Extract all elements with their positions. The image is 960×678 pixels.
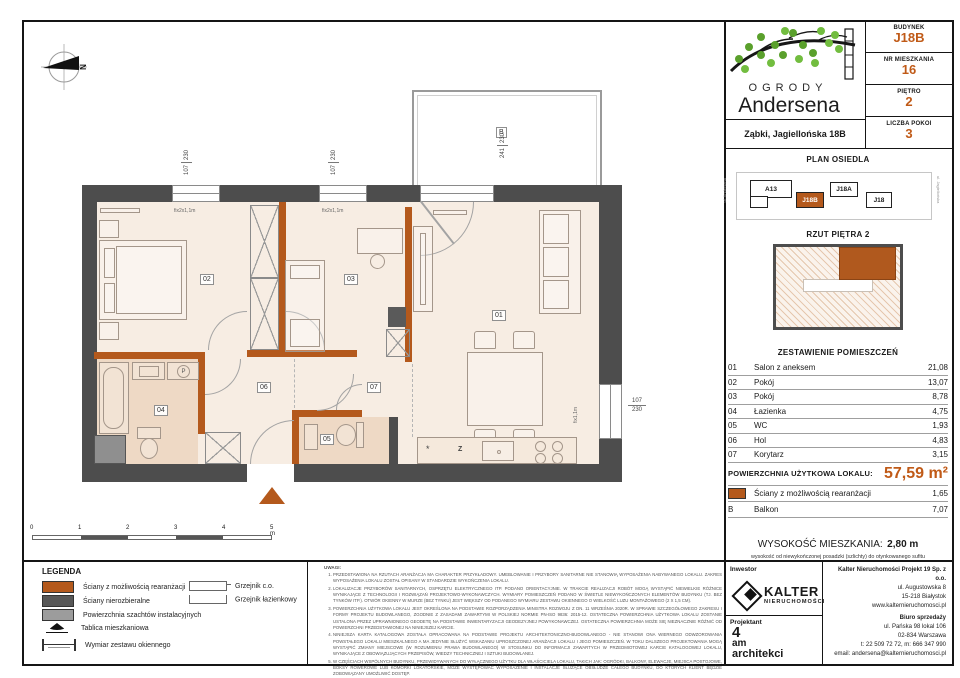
- floor-plan: N B: [24, 22, 724, 560]
- legend-swatch-orange: [42, 581, 74, 593]
- height-label: WYSOKOŚĆ MIESZKANIA:: [758, 539, 883, 550]
- double-bed: [99, 240, 187, 320]
- field-nr-mieszkania: NR MIESZKANIA 16: [866, 54, 952, 85]
- single-bed-blanket: [290, 319, 320, 347]
- dim-w1-width: 107: [184, 165, 190, 175]
- legend-label: Grzejnik łazienkowy: [235, 596, 297, 603]
- field-budynek: BUDYNEK J18B: [866, 22, 952, 53]
- row-area: 1,93: [932, 421, 948, 430]
- wall-bottom: [82, 464, 622, 482]
- pillow-1: [104, 248, 115, 278]
- kitchen-sink-tap: [497, 450, 501, 454]
- cabinet-divider: [420, 233, 426, 305]
- company-addr1: ul. Augustowska 8: [826, 584, 946, 593]
- legend-label: Grzejnik c.o.: [235, 583, 274, 590]
- room-label-04: 04: [154, 405, 168, 416]
- dim-window-right: 107 230: [626, 398, 648, 413]
- dim-sep: [497, 145, 508, 146]
- table-balcony-row: B Balkon 7,07: [728, 502, 948, 518]
- floor-thumb: [773, 244, 903, 330]
- scale-tick-0: 0: [30, 525, 33, 531]
- row-name: Łazienka: [754, 407, 932, 416]
- legend-item-dark: Ściany nierozbieralne: [42, 595, 150, 607]
- scale-tick-4: 4: [222, 525, 225, 531]
- bath-sink: [132, 362, 165, 380]
- dashed-hol-korytarz: [294, 359, 295, 408]
- dashed-salon-kitchen: [412, 364, 413, 437]
- tablica-icon: [42, 623, 72, 633]
- row-name: Korytarz: [754, 450, 932, 459]
- investor-label: Inwestor: [730, 566, 757, 573]
- table-row: 07Korytarz3,15: [728, 448, 948, 463]
- row-name: Salon z aneksem: [754, 363, 928, 372]
- dim-w4-line: [628, 405, 646, 406]
- brand-address: Ząbki, Jagiellońska 18B: [724, 120, 866, 139]
- company-name: Kalter Nieruchomości Projekt 19 Sp. z o.…: [826, 566, 946, 584]
- stove-burner-3: [535, 453, 546, 464]
- tablica-base: [46, 632, 68, 633]
- wc-sink: [304, 424, 318, 450]
- row-name: Pokój: [754, 378, 928, 387]
- orange-wall-bath-right: [198, 359, 205, 434]
- note-item: PRZEDSTAWIONA NA RZUTACH ARANŻACJA MA CH…: [333, 572, 722, 584]
- north-compass-icon: N: [37, 40, 91, 94]
- divider-investor-designer: [724, 615, 822, 616]
- balcony-row-no: B: [728, 505, 754, 514]
- table-walls-row: Ściany z możliwością rearanżacji 1,65: [728, 486, 948, 502]
- height-value: 2,80 m: [887, 539, 918, 550]
- table-row: 01Salon z aneksem21,08: [728, 361, 948, 376]
- fix-label-room02: fix2x1,1m: [174, 208, 195, 214]
- mattress: [116, 246, 182, 314]
- bathtub: [99, 362, 129, 434]
- sales-office-block: Biuro sprzedaży ul. Pańska 98 lokal 106 …: [826, 614, 946, 659]
- legend-item-tablica: Tablica mieszkaniowa: [42, 623, 149, 633]
- kalter-wordmark: KALTER: [764, 584, 819, 599]
- total-label: POWIERZCHNIA UŻYTKOWA LOKALU:: [728, 469, 884, 478]
- row-area: 3,15: [932, 450, 948, 459]
- bath-sink-basin: [139, 366, 159, 377]
- radiator-co-icon: [189, 581, 227, 591]
- stove-burner-4: [552, 453, 563, 464]
- kitchen-sink: [482, 441, 514, 461]
- row-area: 8,78: [932, 392, 948, 401]
- shaft-gray-bath: [94, 435, 126, 464]
- field-pokoi-value: 3: [866, 127, 952, 141]
- site-building-j18b: J18B: [796, 192, 824, 208]
- window-dim-icon: [42, 639, 76, 651]
- bathtub-inner: [103, 367, 124, 429]
- note-item: LOKALIZACJE PRZYBORÓW SANITARNYCH, OSPRZ…: [333, 586, 722, 605]
- room-label-05: 05: [320, 434, 334, 445]
- row-no: 06: [728, 436, 754, 445]
- orange-wall-bath-top: [94, 352, 205, 359]
- legend-item-wymiar: Wymiar zestawu okiennego: [42, 639, 171, 651]
- sales-addr1: ul. Pańska 98 lokal 106: [826, 623, 946, 632]
- walls-row-area: 1,65: [932, 489, 948, 498]
- nightstand-1: [99, 220, 119, 238]
- stove: [528, 438, 574, 465]
- note-item: W CZĘŚCIACH WSPÓLNYCH BUDYNKU, PRZEWIDYW…: [333, 659, 722, 678]
- field-budynek-value: J18B: [866, 31, 952, 45]
- stove-burner-1: [535, 441, 546, 452]
- sheet-frame: N B: [22, 20, 954, 666]
- dim-w3-width: 241: [500, 148, 506, 158]
- fridge-symbol: *: [426, 444, 430, 454]
- window-room03: [319, 185, 367, 202]
- kalter-tagline: nieruchomości: [764, 599, 825, 605]
- scale-seg-5: [223, 536, 271, 539]
- radiator-co-tick: [227, 584, 231, 585]
- dim-w4-width: 107: [626, 398, 648, 404]
- room-label-02: 02: [200, 274, 214, 285]
- legend-title: LEGENDA: [24, 562, 307, 580]
- dim-w3-height: 230: [500, 133, 506, 143]
- legend-label: Ściany nierozbieralne: [83, 598, 150, 605]
- brand-address-cell: Ząbki, Jagiellońska 18B: [724, 119, 866, 149]
- brand-logo-cell: OGRODY Andersena Ząbki, Jagiellońska 18B: [724, 22, 866, 149]
- company-address-block: Kalter Nieruchomości Projekt 19 Sp. z o.…: [826, 566, 946, 611]
- toilet-bath-bowl: [140, 438, 158, 459]
- notes-block: UWAGI: PRZEDSTAWIONA NA RZUTACH ARANŻACJ…: [322, 562, 722, 662]
- floor-thumb-corridor: [803, 279, 872, 292]
- window-room02: [172, 185, 220, 202]
- sofa-cushion-2: [543, 247, 569, 277]
- shaft-dark-salon: [388, 307, 406, 327]
- company-addr2: 15-218 Białystok: [826, 593, 946, 602]
- desk-chair: [370, 254, 385, 269]
- note-item: NINIEJSZA KARTA KATALOGOWA ZOSTAŁA OPRAC…: [333, 632, 722, 657]
- dim-balcony-door: 241230: [497, 133, 508, 158]
- dim-sep: [181, 162, 192, 163]
- row-area: 21,08: [928, 363, 948, 372]
- stove-burner-2: [552, 441, 563, 452]
- row-area: 13,07: [928, 378, 948, 387]
- dim-sep: [328, 162, 339, 163]
- field-nr-value: 16: [866, 63, 952, 77]
- window-dim-line: [44, 644, 74, 645]
- legend-item-grzejnik-co: Grzejnik c.o.: [189, 581, 274, 591]
- row-no: 02: [728, 378, 754, 387]
- shelf-room02: [100, 208, 140, 213]
- balcony-row-name: Balkon: [754, 505, 932, 514]
- dim-window-room02: 107230: [181, 150, 192, 175]
- dim-w4-height: 230: [626, 407, 648, 413]
- rooms-table: ZESTAWIENIE POMIESZCZEŃ 01Salon z anekse…: [728, 348, 948, 518]
- legend-item-grzejnik-laz: Grzejnik łazienkowy: [189, 595, 297, 604]
- table-row: 02Pokój13,07: [728, 376, 948, 391]
- wc-toilet-bowl: [336, 424, 356, 446]
- scale-bar-track: [32, 535, 272, 540]
- total-value: 57,59 m²: [884, 465, 948, 483]
- dining-chair-1: [474, 331, 496, 349]
- rooms-table-title: ZESTAWIENIE POMIESZCZEŃ: [728, 348, 948, 357]
- sofa-cushion-1: [543, 214, 569, 244]
- radiator-bath-icon: [189, 595, 227, 604]
- table-row: 06Hol4,83: [728, 434, 948, 449]
- entrance-marker-triangle: [259, 487, 285, 504]
- room-label-03: 03: [344, 274, 358, 285]
- balcony-row-area: 7,07: [932, 505, 948, 514]
- single-bed-pillow: [290, 265, 320, 279]
- site-plan-title: PLAN OSIEDLA: [724, 155, 952, 164]
- dim-window-room03: 107230: [328, 150, 339, 175]
- row-no: 04: [728, 407, 754, 416]
- row-no: 05: [728, 421, 754, 430]
- tablica-triangle: [48, 623, 66, 630]
- table-row: 04Łazienka4,75: [728, 405, 948, 420]
- walls-swatch-cell: [728, 488, 754, 499]
- legend-item-orange: Ściany z możliwością rearanżacji: [42, 581, 185, 593]
- street-right-label: ul. Jagiellońska: [936, 176, 941, 203]
- dim-w1-height: 230: [184, 150, 190, 160]
- sofa: [539, 210, 581, 314]
- tree-branch-logo: [727, 25, 863, 81]
- brand-name-andersena: Andersena: [724, 94, 854, 118]
- note-item: POWIERZCHNIA UŻYTKOWA LOKALU JEST OKREŚL…: [333, 606, 722, 631]
- site-building-j18: J18: [866, 192, 892, 208]
- compass-n-label: N: [79, 64, 88, 70]
- row-name: Pokój: [754, 392, 932, 401]
- row-area: 4,83: [932, 436, 948, 445]
- floor-thumb-highlight-unit: [839, 247, 896, 280]
- sales-phone: t: 22 509 72 72, m: 666 347 990: [826, 641, 946, 650]
- pillow-2: [104, 283, 115, 313]
- notes-title: UWAGI:: [322, 562, 722, 572]
- site-building-a13-wing: [750, 196, 768, 208]
- sofa-cushion-3: [543, 280, 569, 309]
- legend-swatch-gray: [42, 609, 74, 621]
- brand-block: OGRODY Andersena Ząbki, Jagiellońska 18B…: [724, 22, 952, 149]
- row-no: 07: [728, 450, 754, 459]
- table-row: 05WC1,93: [728, 419, 948, 434]
- washing-machine: P: [167, 362, 199, 380]
- nightstand-2: [99, 322, 119, 340]
- legend-item-shaft: Powierzchnia szachtów instalacyjnych: [42, 609, 201, 621]
- scale-seg-2: [81, 536, 129, 539]
- kitchen-counter: * Z: [417, 437, 577, 464]
- street-left-label: ul. Andersena: [722, 178, 727, 202]
- wardrobe-lower: [250, 278, 279, 350]
- orange-wall-wc-top: [292, 410, 362, 417]
- unit-fields: BUDYNEK J18B NR MIESZKANIA 16 PIĘTRO 2 L…: [866, 22, 952, 149]
- height-note: WYSOKOŚĆ MIESZKANIA: 2,80 m wysokość od …: [724, 534, 952, 560]
- legend: LEGENDA Ściany z możliwością rearanżacji…: [24, 562, 307, 664]
- legend-swatch-dark: [42, 595, 74, 607]
- dining-table: [467, 352, 543, 426]
- dishwasher-symbol: Z: [458, 446, 462, 453]
- sales-title: Biuro sprzedaży: [826, 614, 946, 623]
- dim-w2-width: 107: [331, 165, 337, 175]
- row-name: Hol: [754, 436, 932, 445]
- room-label-07: 07: [367, 382, 381, 393]
- company-web: www.kalternieruchomosci.pl: [826, 602, 946, 611]
- row-area: 4,75: [932, 407, 948, 416]
- walls-row-name: Ściany z możliwością rearanżacji: [754, 489, 932, 498]
- scale-seg-3: [128, 536, 176, 539]
- table-row: 03Pokój8,78: [728, 390, 948, 405]
- divider-legend-notes: [307, 560, 308, 664]
- scale-seg-1: [33, 536, 81, 539]
- wc-toilet-tank: [356, 422, 364, 448]
- scale-tick-3: 3: [174, 525, 177, 531]
- field-pietro: PIĘTRO 2: [866, 86, 952, 117]
- hol-wardrobe: [205, 432, 241, 464]
- table-total-row: POWIERZCHNIA UŻYTKOWA LOKALU: 57,59 m²: [728, 463, 948, 486]
- wardrobe-upper: [250, 205, 279, 278]
- legend-label: Wymiar zestawu okiennego: [85, 642, 171, 649]
- designer-logo: 4 am architekci: [732, 626, 783, 660]
- room-label-06: 06: [257, 382, 271, 393]
- brand-name-ogrody: OGRODY: [724, 82, 852, 94]
- field-pietro-value: 2: [866, 95, 952, 109]
- tall-cabinet: [413, 226, 433, 312]
- scale-tick-2: 2: [126, 525, 129, 531]
- legend-label: Ściany z możliwością rearanżacji: [83, 584, 185, 591]
- row-no: 01: [728, 363, 754, 372]
- scale-bar: 0 1 2 3 4 5 m: [32, 525, 274, 543]
- designer-architekci: architekci: [732, 649, 783, 660]
- scale-tick-1: 1: [78, 525, 81, 531]
- site-plan-map: ul. Andersena ul. Jagiellońska A13 J18B …: [724, 168, 952, 226]
- window-dim-line2: [48, 647, 70, 648]
- row-no: 03: [728, 392, 754, 401]
- washing-machine-drum: P: [177, 365, 190, 378]
- room-label-01: 01: [492, 310, 506, 321]
- row-name: WC: [754, 421, 932, 430]
- entrance-opening: [247, 464, 294, 482]
- site-building-j18a: J18A: [830, 182, 858, 197]
- scale-seg-4: [176, 536, 224, 539]
- dining-chair-2: [513, 331, 535, 349]
- fix-label-window-right: fix1,1m: [573, 407, 579, 423]
- orange-wall-swatch: [728, 488, 746, 499]
- sales-email: email: andersena@kalternieruchomosci.pl: [826, 650, 946, 659]
- fix-label-room03: fix2x1,1m: [322, 208, 343, 214]
- window-salon-right: [599, 384, 622, 439]
- floor-thumb-title: RZUT PIĘTRA 2: [724, 230, 952, 239]
- kalter-logo: KALTER nieruchomości: [732, 582, 820, 612]
- footer-companies: Inwestor KALTER nieruchomości Projektant…: [724, 562, 952, 664]
- desk-room03: [357, 228, 403, 254]
- dim-w2-height: 230: [331, 150, 337, 160]
- notes-list: PRZEDSTAWIONA NA RZUTACH ARANŻACJA MA CH…: [322, 572, 722, 678]
- shaft-xbox-salon: [386, 329, 410, 357]
- legend-label: Powierzchnia szachtów instalacyjnych: [83, 612, 201, 619]
- field-liczba-pokoi: LICZBA POKOI 3: [866, 118, 952, 149]
- balcony-door-opening: [420, 185, 494, 202]
- tv-shelf: [433, 210, 467, 215]
- divider-footer-cols: [822, 562, 823, 664]
- legend-label: Tablica mieszkaniowa: [81, 625, 149, 632]
- wall-wc-right: [389, 417, 398, 464]
- catalog-sheet-page: N B: [0, 0, 960, 678]
- single-bed: [285, 260, 325, 352]
- sales-addr2: 02-834 Warszawa: [826, 632, 946, 641]
